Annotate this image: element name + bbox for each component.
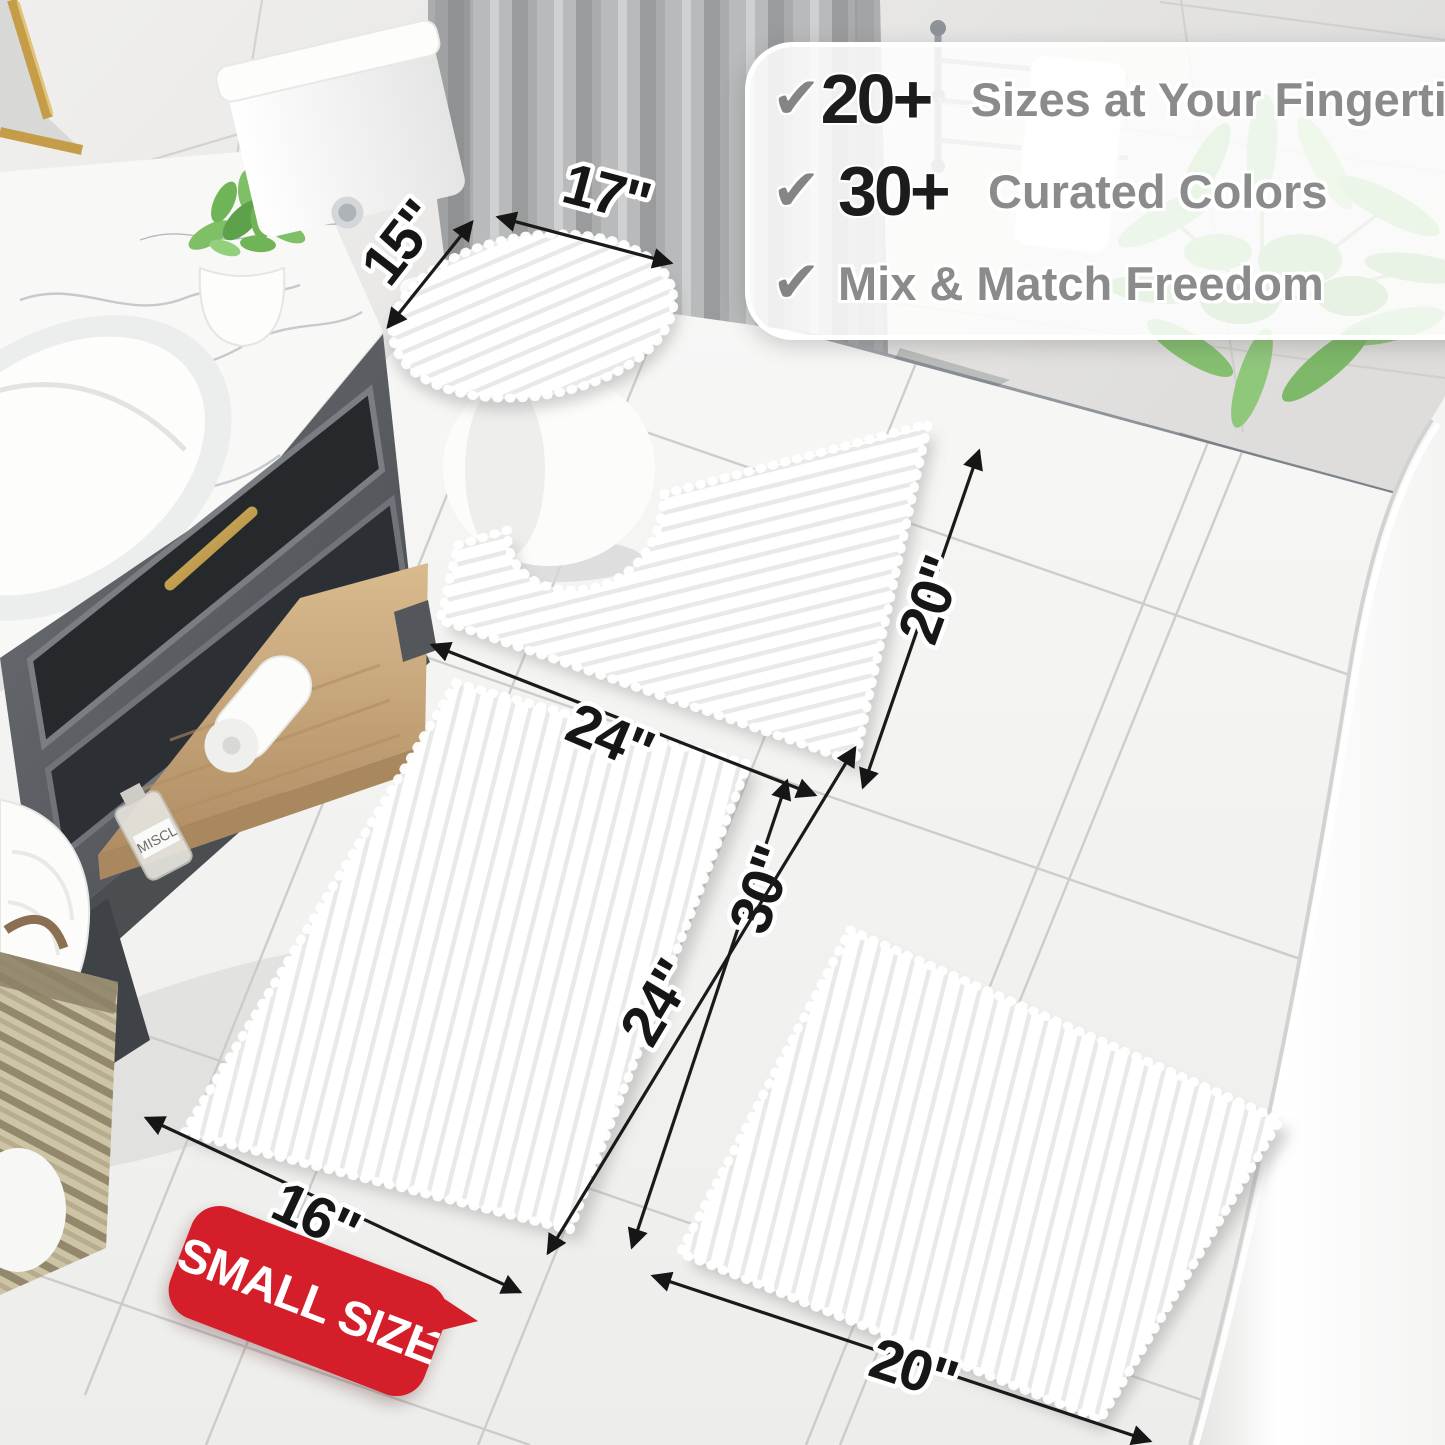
product-image: MISCL — [0, 0, 1445, 1445]
callout-label: Curated Colors — [988, 168, 1328, 215]
callout-row-sizes: ✔ 20+ Sizes at Your Fingertips — [772, 53, 1445, 145]
callout-stat: 30+ — [838, 156, 988, 226]
callout-label: Sizes at Your Fingertips — [971, 76, 1445, 123]
feature-callout: ✔ 20+ Sizes at Your Fingertips ✔ 30+ Cur… — [745, 42, 1445, 340]
callout-stat: 20+ — [821, 64, 971, 134]
callout-row-mix-match: ✔ Mix & Match Freedom — [772, 237, 1445, 329]
callout-row-colors: ✔ 30+ Curated Colors — [772, 145, 1445, 237]
check-icon: ✔ — [772, 254, 838, 312]
check-icon: ✔ — [772, 70, 821, 128]
callout-label: Mix & Match Freedom — [838, 260, 1324, 307]
check-icon: ✔ — [772, 162, 838, 220]
